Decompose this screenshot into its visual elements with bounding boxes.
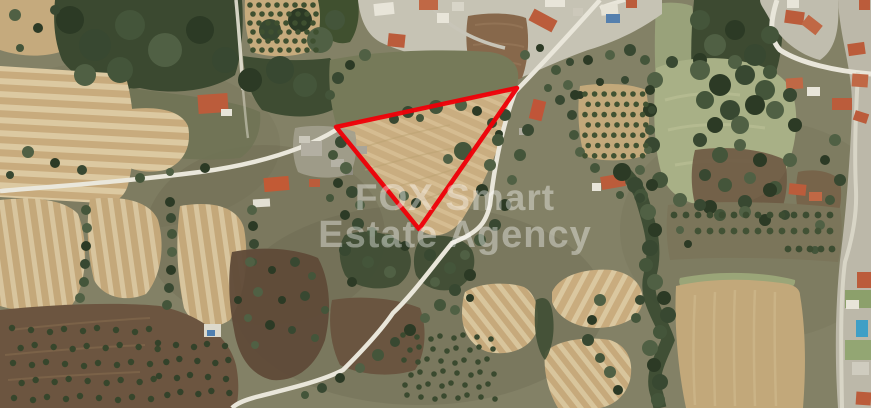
building: [253, 199, 270, 208]
tree: [61, 326, 67, 332]
tree: [767, 228, 774, 235]
tree: [328, 150, 338, 160]
tree: [81, 205, 91, 215]
tree: [286, 11, 292, 17]
building: [857, 272, 871, 288]
tree: [461, 357, 467, 363]
tree: [594, 294, 606, 306]
tree: [50, 344, 56, 350]
tree: [84, 378, 90, 384]
building: [387, 33, 405, 48]
tree: [96, 395, 102, 401]
tree: [653, 325, 667, 339]
tree: [74, 64, 96, 86]
tree: [83, 343, 89, 349]
tree: [428, 336, 434, 342]
tree: [444, 262, 456, 274]
tree: [274, 2, 280, 8]
tree: [444, 348, 450, 354]
tree: [647, 358, 661, 372]
building: [452, 2, 464, 11]
tree: [451, 335, 457, 341]
tree: [146, 326, 152, 332]
tree: [417, 369, 423, 375]
tree: [476, 344, 482, 350]
tree: [827, 212, 834, 219]
tree: [359, 49, 371, 61]
tree: [796, 246, 803, 253]
tree: [640, 204, 656, 220]
tree: [415, 359, 421, 365]
tree: [604, 366, 616, 378]
tree: [75, 293, 85, 303]
tree: [259, 29, 265, 35]
tree: [595, 102, 601, 108]
building: [852, 362, 869, 375]
tree: [256, 20, 262, 26]
tree: [268, 11, 274, 17]
tree: [346, 186, 358, 198]
tree: [301, 20, 307, 26]
tree: [437, 333, 443, 339]
tree: [643, 122, 649, 128]
tree: [6, 171, 14, 179]
tree: [424, 356, 430, 362]
tree: [671, 212, 678, 219]
tree: [464, 269, 476, 281]
tree: [16, 44, 24, 52]
tree: [174, 375, 180, 381]
tree: [177, 389, 183, 395]
tree: [783, 153, 797, 167]
tree: [147, 361, 153, 367]
tree: [490, 346, 496, 352]
tree: [614, 143, 620, 149]
tree: [783, 88, 797, 102]
tree: [551, 65, 561, 75]
tree: [719, 228, 726, 235]
tree: [295, 29, 301, 35]
tree: [601, 132, 607, 138]
tree: [308, 272, 316, 280]
tree: [277, 47, 283, 53]
tree: [467, 347, 473, 353]
tree: [51, 379, 57, 385]
tree: [633, 122, 639, 128]
tree: [643, 143, 649, 149]
tree: [399, 191, 409, 201]
tree: [259, 11, 265, 17]
tree: [614, 102, 620, 108]
building: [592, 183, 601, 191]
tree: [707, 117, 723, 133]
tree: [411, 198, 421, 208]
tree: [611, 91, 617, 97]
tree: [404, 392, 410, 398]
tree: [310, 2, 316, 8]
tree: [155, 340, 161, 346]
tree: [234, 296, 242, 304]
tree: [62, 361, 68, 367]
tree: [763, 65, 777, 79]
tree: [247, 20, 253, 26]
tree: [114, 362, 120, 368]
building: [221, 109, 232, 116]
tree: [382, 234, 394, 246]
tree: [283, 20, 289, 26]
tree: [225, 357, 231, 363]
tree: [251, 341, 259, 349]
building: [301, 141, 322, 156]
tree: [113, 327, 119, 333]
tree: [430, 277, 440, 287]
tree: [400, 241, 410, 251]
tree: [454, 370, 460, 376]
building: [207, 330, 215, 336]
tree: [834, 174, 846, 186]
tree: [310, 20, 316, 26]
tree: [293, 73, 317, 97]
tree: [425, 381, 431, 387]
tree: [355, 363, 365, 373]
tree: [352, 218, 364, 230]
tree: [128, 359, 134, 365]
building: [859, 0, 870, 10]
tree: [295, 47, 301, 53]
tree: [753, 153, 767, 167]
tree: [223, 376, 229, 382]
tree: [166, 265, 176, 275]
tree: [164, 392, 170, 398]
tree: [718, 178, 732, 192]
tree: [744, 44, 766, 66]
tree: [443, 154, 453, 164]
tree: [372, 349, 384, 361]
tree: [592, 91, 598, 97]
tree: [345, 60, 355, 70]
building: [545, 0, 565, 7]
tree: [438, 358, 444, 364]
tree: [468, 372, 474, 378]
tree: [779, 212, 786, 219]
tree: [803, 212, 810, 219]
tree: [601, 91, 607, 97]
tree: [583, 55, 593, 65]
tree: [176, 356, 182, 362]
tree: [477, 369, 483, 375]
tree: [829, 246, 836, 253]
tree: [460, 250, 470, 260]
tree: [690, 10, 710, 30]
tree: [829, 134, 841, 146]
tree: [450, 305, 460, 315]
tree: [695, 212, 702, 219]
tree: [499, 199, 511, 211]
tree: [767, 212, 774, 219]
tree: [684, 240, 692, 248]
tree: [595, 353, 605, 363]
tree: [582, 132, 588, 138]
tree: [407, 347, 413, 353]
tree: [286, 29, 292, 35]
tree: [439, 383, 445, 389]
tree: [647, 274, 663, 290]
tree: [448, 380, 454, 386]
tree: [194, 358, 200, 364]
tree: [226, 390, 232, 396]
tree: [340, 210, 350, 220]
tree: [631, 313, 641, 323]
tree: [311, 334, 319, 342]
tree: [265, 20, 271, 26]
tree: [592, 112, 598, 118]
tree: [164, 283, 174, 293]
tree: [514, 149, 526, 161]
tree: [247, 2, 253, 8]
tree: [245, 257, 255, 267]
tree: [648, 223, 662, 237]
tree: [704, 34, 726, 56]
tree: [265, 320, 275, 330]
tree: [807, 246, 814, 253]
tree: [660, 307, 676, 323]
tree: [489, 219, 501, 231]
tree: [135, 344, 141, 350]
tree: [621, 91, 627, 97]
tree: [624, 122, 630, 128]
tree: [367, 227, 377, 237]
tree: [22, 146, 34, 158]
tree: [507, 175, 517, 185]
tree: [79, 29, 111, 61]
tree: [640, 153, 646, 159]
building: [626, 0, 637, 8]
tree: [453, 345, 459, 351]
tree: [731, 116, 749, 134]
tree: [766, 101, 784, 119]
tree: [743, 228, 750, 235]
tree: [693, 133, 707, 147]
tree: [492, 134, 504, 146]
tree: [135, 173, 145, 183]
tree: [791, 228, 798, 235]
tree: [148, 33, 182, 67]
tree: [266, 56, 294, 84]
tree: [295, 11, 301, 17]
tree: [416, 384, 422, 390]
tree: [107, 57, 133, 83]
tree: [590, 163, 600, 173]
tree: [268, 266, 276, 274]
tree: [390, 337, 400, 347]
tree: [29, 362, 35, 368]
tree: [640, 55, 650, 65]
tree: [761, 26, 779, 44]
tree: [79, 277, 89, 287]
building: [419, 0, 438, 10]
tree: [81, 363, 87, 369]
tree: [82, 223, 92, 233]
tree: [166, 213, 176, 223]
tree: [566, 58, 574, 66]
building: [573, 8, 583, 16]
tree: [80, 259, 90, 269]
building: [786, 77, 804, 89]
tree: [779, 228, 786, 235]
tree: [339, 244, 351, 256]
tree: [695, 228, 702, 235]
tree: [818, 246, 825, 253]
tree: [154, 346, 160, 352]
tree: [247, 205, 257, 215]
tree: [621, 76, 629, 84]
tree: [455, 395, 461, 401]
tree: [200, 163, 210, 173]
tree: [222, 343, 228, 349]
tree: [827, 228, 834, 235]
tree: [205, 374, 211, 380]
tree: [452, 360, 458, 366]
tree: [491, 371, 497, 377]
tree: [17, 345, 23, 351]
tree: [522, 124, 534, 136]
tree: [292, 38, 298, 44]
tree: [424, 249, 436, 261]
tree: [283, 38, 289, 44]
tree: [408, 372, 414, 378]
tree: [212, 360, 218, 366]
tree: [763, 183, 777, 197]
tree: [31, 342, 37, 348]
tree: [80, 328, 86, 334]
tree: [595, 143, 601, 149]
tree: [803, 228, 810, 235]
tree: [673, 193, 687, 207]
tree: [274, 38, 280, 44]
tree: [613, 385, 623, 395]
tree: [117, 377, 123, 383]
tree: [621, 153, 627, 159]
tree: [633, 102, 639, 108]
tree: [136, 379, 142, 385]
tree: [191, 344, 197, 350]
tree: [643, 102, 649, 108]
tree: [186, 16, 214, 44]
tree: [474, 334, 480, 340]
listing-photo: FOX Smart Estate Agency: [0, 0, 871, 408]
tree: [310, 38, 316, 44]
tree: [265, 38, 271, 44]
tree: [129, 394, 135, 400]
tree: [696, 91, 714, 109]
building: [437, 13, 449, 23]
tree: [277, 29, 283, 35]
tree: [731, 212, 738, 219]
tree: [94, 325, 100, 331]
tree: [635, 295, 645, 305]
building: [784, 10, 805, 26]
tree: [355, 200, 365, 210]
tree: [441, 393, 447, 399]
tree: [288, 326, 296, 334]
tree: [414, 334, 420, 340]
tree: [347, 277, 357, 287]
tree: [815, 228, 822, 235]
tree: [259, 47, 265, 53]
tree: [256, 38, 262, 44]
building: [787, 0, 799, 8]
building: [856, 391, 871, 405]
tree: [699, 169, 711, 181]
tree: [640, 132, 646, 138]
tree: [734, 139, 746, 151]
tree: [614, 122, 620, 128]
tree: [474, 234, 486, 246]
tree: [9, 9, 21, 21]
tree: [9, 325, 15, 331]
tree: [313, 47, 319, 53]
tree: [115, 397, 121, 403]
tree: [707, 212, 714, 219]
tree: [10, 360, 16, 366]
building: [606, 14, 620, 23]
tree: [33, 23, 43, 33]
tree: [719, 212, 726, 219]
tree: [582, 334, 594, 346]
building: [852, 73, 869, 87]
tree: [69, 346, 75, 352]
tree: [317, 383, 327, 393]
tree: [420, 313, 430, 323]
tree: [642, 240, 658, 256]
tree: [648, 106, 656, 114]
tree: [585, 143, 591, 149]
tree: [624, 143, 630, 149]
tree: [476, 184, 488, 196]
tree: [791, 212, 798, 219]
tree: [605, 143, 611, 149]
tree: [156, 373, 162, 379]
tree: [731, 228, 738, 235]
tree: [362, 256, 374, 268]
tree: [707, 228, 714, 235]
tree: [635, 165, 645, 175]
tree: [755, 228, 762, 235]
tree: [744, 172, 756, 184]
tree: [582, 91, 588, 97]
tree: [212, 47, 238, 73]
tree: [300, 291, 310, 301]
tree: [488, 336, 494, 342]
tree: [596, 78, 604, 86]
tree: [81, 241, 91, 251]
tree: [165, 197, 175, 207]
tree: [569, 130, 579, 140]
tree: [256, 2, 262, 8]
tree: [605, 50, 615, 60]
tree: [815, 212, 822, 219]
tree: [633, 143, 639, 149]
tree: [635, 193, 645, 203]
tree: [77, 165, 87, 175]
tree: [274, 20, 280, 26]
tree: [301, 2, 307, 8]
tree: [102, 345, 108, 351]
tree: [416, 344, 422, 350]
tree: [301, 38, 307, 44]
tree: [187, 372, 193, 378]
building: [263, 176, 289, 192]
